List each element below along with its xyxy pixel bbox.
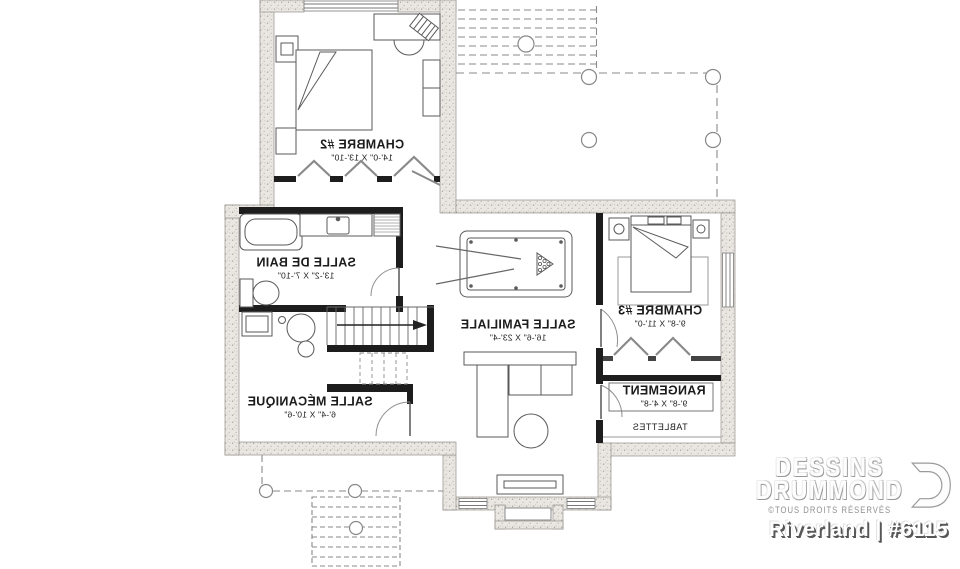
- brand-block: DESSINS DRUMMOND ©TOUS DROITS RÉSERVÉS R…: [744, 456, 952, 542]
- room-name: SALLE FAMILIALE: [461, 318, 576, 332]
- room-label-rangement: RANGEMENT 9'-8" X 4'-8": [622, 384, 705, 409]
- family-room-furniture: [436, 231, 576, 494]
- room-dimensions: 9'-8" X 11'-0": [618, 319, 702, 329]
- brand-line-drummond: DRUMMOND: [756, 479, 903, 502]
- plan-title: Riverland | #6115: [744, 518, 952, 542]
- room-dimensions: 6'-4" X 10'-6": [247, 410, 372, 420]
- deck-lower-dashed: [260, 455, 444, 566]
- bedroom3-furniture: [609, 216, 709, 305]
- room-dimensions: 14'-0" X 13'-10": [320, 153, 404, 163]
- floor-plan-canvas: CHAMBRE #2 14'-0" X 13'-10" SALLE DE BAI…: [0, 0, 960, 569]
- room-name: CHAMBRE #2: [320, 138, 404, 152]
- room-name: CHAMBRE #3: [618, 304, 702, 318]
- annotation-tablettes: TABLETTES: [632, 422, 687, 432]
- room-label-chambre3: CHAMBRE #3 9'-8" X 11'-0": [618, 304, 702, 329]
- drummond-d-monogram-icon: [908, 459, 952, 513]
- room-dimensions: 9'-8" X 4'-8": [622, 399, 705, 409]
- room-name: SALLE MÉCANIQUE: [247, 395, 372, 409]
- room-dimensions: 16'-6" X 23'-4": [461, 333, 576, 343]
- room-name: SALLE DE BAIN: [256, 256, 356, 270]
- mechanical-fixtures: [242, 312, 315, 357]
- copyright-text: ©TOUS DROITS RÉSERVÉS: [756, 505, 903, 515]
- room-label-chambre2: CHAMBRE #2 14'-0" X 13'-10": [320, 138, 404, 163]
- room-label-salle-familiale: SALLE FAMILIALE 16'-6" X 23'-4": [461, 318, 576, 343]
- room-label-salle-de-bain: SALLE DE BAIN 13'-2" X 7'-10": [256, 256, 356, 281]
- brand-wordmark: DESSINS DRUMMOND ©TOUS DROITS RÉSERVÉS: [756, 456, 903, 515]
- bedroom2-furniture: [276, 13, 440, 154]
- bay-window-well: [495, 505, 563, 529]
- room-label-salle-mecanique: SALLE MÉCANIQUE 6'-4" X 10'-6": [247, 395, 372, 420]
- room-name: RANGEMENT: [622, 384, 705, 398]
- deck-upper-dashed: [456, 6, 721, 200]
- room-dimensions: 13'-2" X 7'-10": [256, 271, 356, 281]
